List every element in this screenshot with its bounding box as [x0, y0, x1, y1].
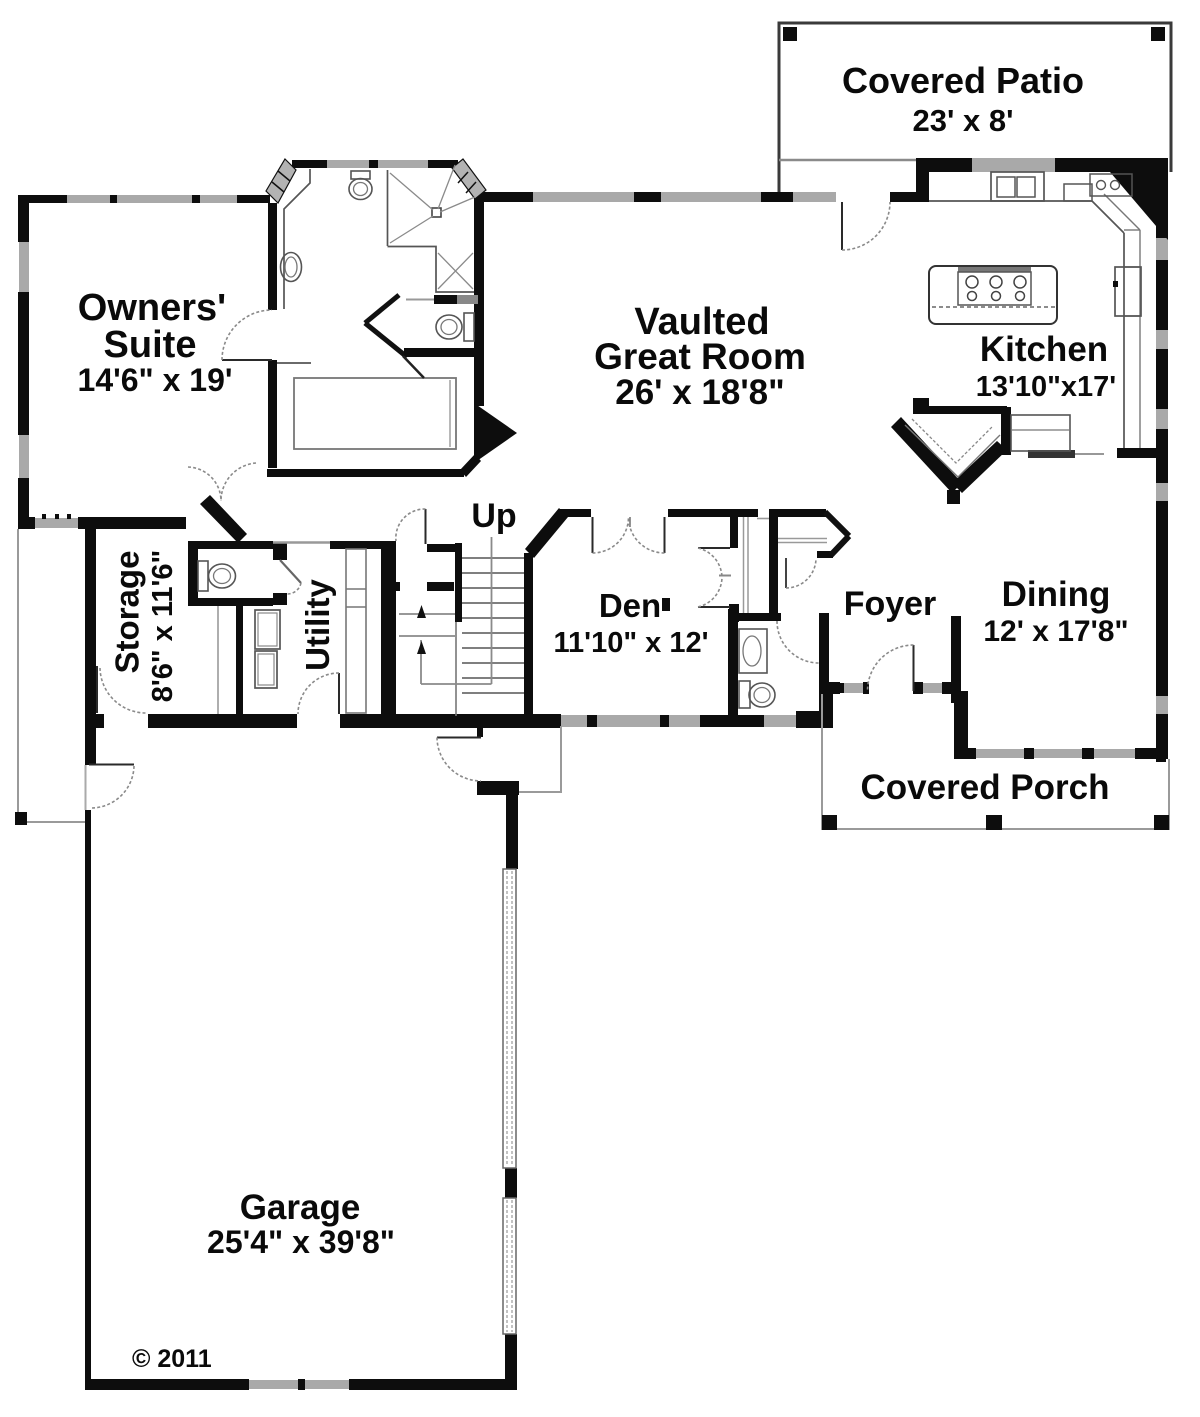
svg-text:25'4" x 39'8": 25'4" x 39'8" — [207, 1224, 395, 1260]
svg-text:Up: Up — [471, 497, 516, 535]
svg-text:13'10"x17': 13'10"x17' — [976, 371, 1116, 403]
svg-text:11'10" x 12': 11'10" x 12' — [554, 627, 709, 659]
svg-text:Covered Patio: Covered Patio — [842, 60, 1084, 101]
svg-text:Utility: Utility — [299, 579, 336, 671]
svg-text:26' x 18'8": 26' x 18'8" — [615, 373, 784, 412]
svg-text:Owners': Owners' — [78, 287, 226, 329]
svg-text:Foyer: Foyer — [844, 585, 937, 623]
svg-text:Garage: Garage — [240, 1188, 361, 1227]
svg-text:Storage: Storage — [109, 551, 146, 674]
svg-text:© 2011: © 2011 — [132, 1345, 212, 1373]
svg-text:Den: Den — [599, 587, 661, 624]
svg-text:14'6" x 19': 14'6" x 19' — [78, 362, 233, 398]
svg-text:Great Room: Great Room — [594, 336, 806, 377]
svg-text:Dining: Dining — [1002, 575, 1111, 614]
svg-text:8'6" x 11'6": 8'6" x 11'6" — [147, 550, 179, 703]
svg-text:23' x 8': 23' x 8' — [913, 103, 1014, 138]
svg-text:Kitchen: Kitchen — [980, 330, 1108, 369]
svg-text:Suite: Suite — [104, 324, 197, 366]
svg-text:12' x 17'8": 12' x 17'8" — [983, 615, 1128, 648]
svg-text:Covered Porch: Covered Porch — [861, 768, 1110, 807]
